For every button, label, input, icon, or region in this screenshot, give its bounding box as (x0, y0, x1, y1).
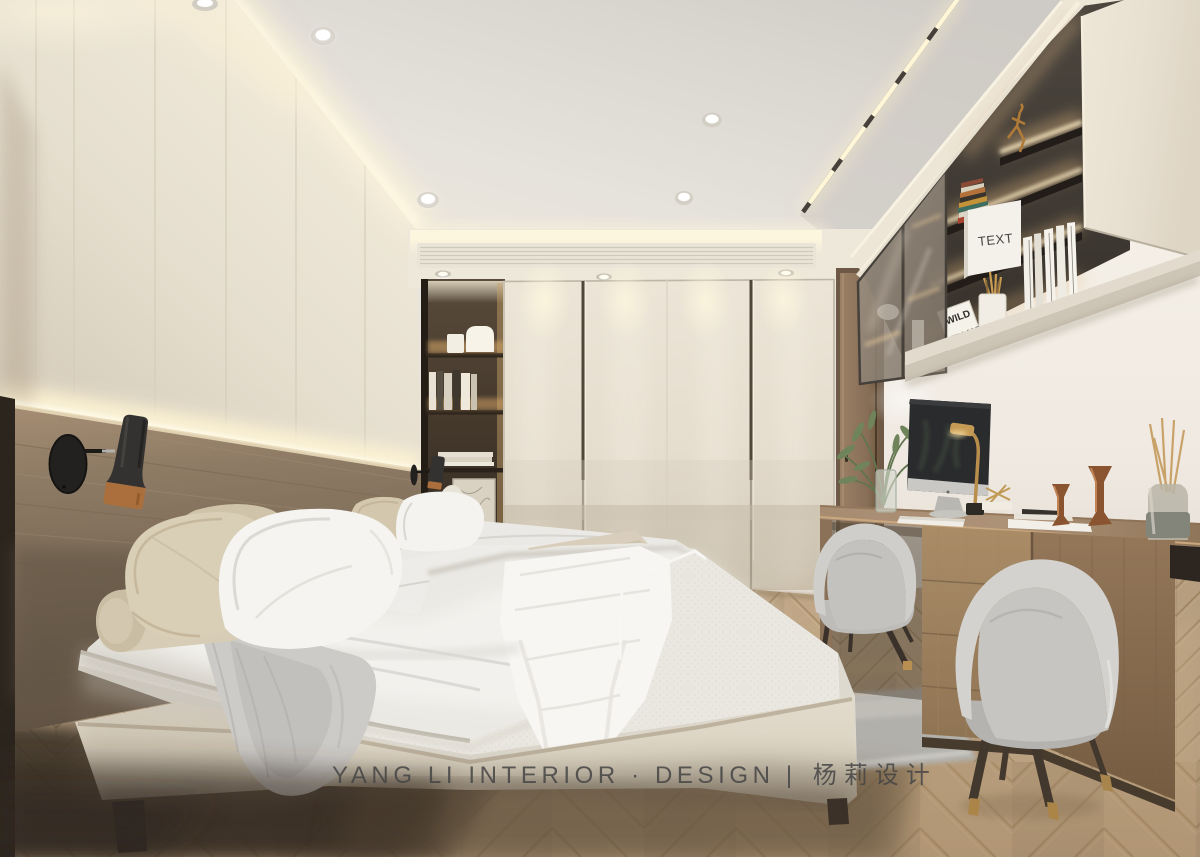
svg-text:YANG LI INTERIOR · DESIGN | 杨莉: YANG LI INTERIOR · DESIGN | 杨莉设计 (332, 762, 937, 789)
